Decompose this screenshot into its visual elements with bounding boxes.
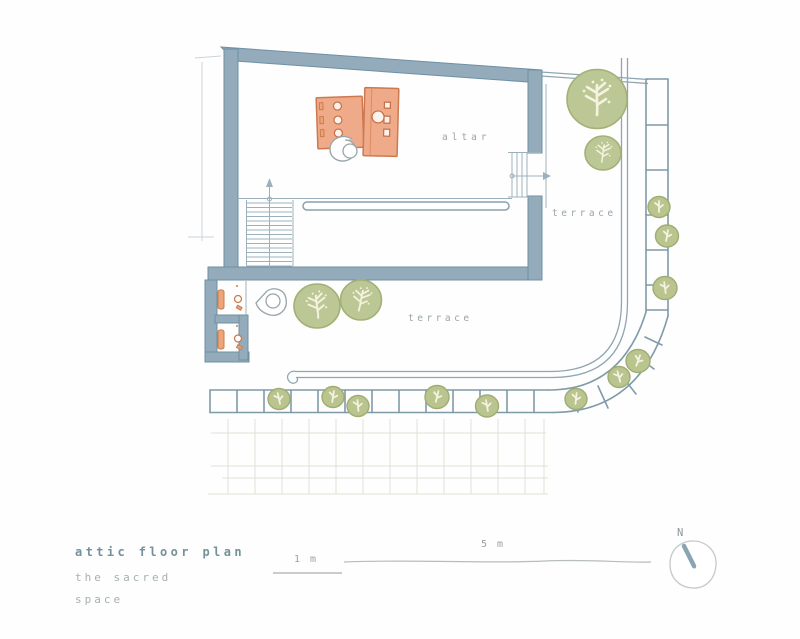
title-block: attic floor plan the sacred space [75,545,245,606]
wall-bottom [208,267,541,280]
terrace-label-lower: terrace [408,313,473,324]
parapet-end-hook [288,371,298,383]
bush [347,396,369,417]
bush [322,387,344,408]
bush [425,386,449,409]
lower-floor-ghost-grid [208,419,548,494]
scale-bar: 1 m 5 m [273,539,651,573]
exit-direction-arrow [510,172,551,180]
gallery-railing [238,199,512,211]
tree [341,280,382,320]
bush [476,395,499,417]
drawing-title: attic floor plan [75,545,245,559]
wall-right-upper [528,70,542,153]
bush [648,197,670,218]
altar-furniture [316,88,399,161]
wall-top [221,47,542,83]
staircase-exit [508,153,551,198]
planter-strip-bottom [210,390,553,413]
bush [565,389,587,410]
staircase-main [247,178,294,267]
drawing-subtitle-line1: the sacred [75,571,171,584]
bush [626,350,650,373]
construction-lines [188,56,221,241]
wall-right-lower [528,196,542,280]
altar-label: altar [442,132,491,143]
tree [294,284,340,328]
tree [585,136,621,170]
scale-5m-label: 5 m [481,539,505,550]
north-compass: N [670,527,716,588]
bush [653,277,677,300]
floor-plan-page: altar terrace terrace attic floor plan t… [0,0,800,639]
bush [268,389,290,410]
north-label: N [677,527,683,539]
bush [656,225,679,247]
tree [567,70,627,129]
terrace-sketch-object [256,289,286,315]
bush [608,367,630,388]
scale-1m-label: 1 m [294,554,318,565]
drawing-subtitle-line2: space [75,593,123,606]
floor-plan-svg: altar terrace terrace attic floor plan t… [0,0,800,639]
scale-5m-line [344,560,651,562]
terrace-label-upper: terrace [552,208,617,219]
wall-left [224,49,238,270]
